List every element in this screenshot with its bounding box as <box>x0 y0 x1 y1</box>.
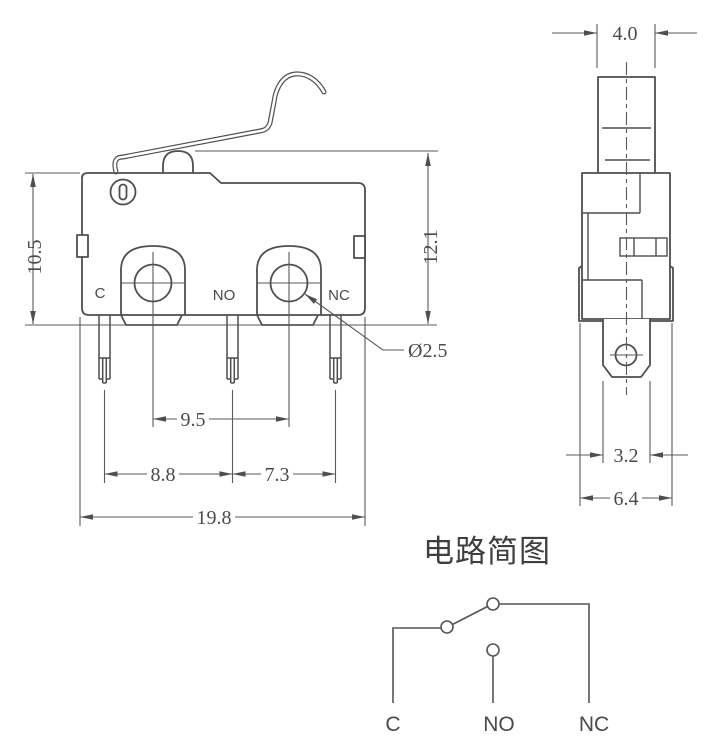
terminal-label-no: NO <box>213 287 236 304</box>
dim-pin-pitches: 8.8 7.3 <box>105 464 336 486</box>
technical-drawing-page: C NO NC <box>0 0 720 744</box>
dim-terminal-width: 3.2 <box>566 445 688 467</box>
circuit-label-c: C <box>385 713 400 736</box>
side-view: 4.0 3.2 6.4 <box>552 23 697 510</box>
mount-boss-left <box>121 246 185 427</box>
micro-switch-drawing: C NO NC <box>0 0 720 744</box>
side-body-internal <box>583 173 667 319</box>
circuit-wiring <box>393 598 589 703</box>
circuit-diagram: 电路简图 C NO NC <box>385 534 609 736</box>
svg-text:19.8: 19.8 <box>197 507 232 529</box>
dim-total-height: 12.1 <box>420 153 442 324</box>
circuit-label-nc: NC <box>579 713 609 736</box>
contact-nc <box>487 598 499 610</box>
side-notch-right <box>354 236 365 258</box>
svg-text:12.1: 12.1 <box>420 230 442 265</box>
svg-text:4.0: 4.0 <box>613 23 638 45</box>
terminal-label-c: C <box>95 285 106 302</box>
dim-mount-hole-spacing: 9.5 <box>153 409 289 431</box>
svg-text:9.5: 9.5 <box>181 409 206 431</box>
mount-boss-right <box>257 246 321 427</box>
lever-arm <box>115 74 324 172</box>
body-foot-right <box>257 315 318 325</box>
pivot-slot <box>120 185 127 200</box>
svg-text:Ø2.5: Ø2.5 <box>408 340 447 362</box>
front-dimensions: 10.5 12.1 9.5 <box>24 151 447 529</box>
circuit-label-no: NO <box>483 713 515 736</box>
contact-no <box>487 644 499 656</box>
svg-text:10.5: 10.5 <box>24 240 46 275</box>
circuit-title: 电路简图 <box>423 534 551 569</box>
dim-hole-diameter-leader: Ø2.5 <box>303 292 447 362</box>
dim-body-thickness: 6.4 <box>580 488 672 510</box>
front-view: C NO NC <box>24 74 447 529</box>
dim-body-width: 19.8 <box>80 507 365 529</box>
dim-body-height: 10.5 <box>24 174 46 324</box>
svg-text:6.4: 6.4 <box>614 488 639 510</box>
dim-plunger-width: 4.0 <box>552 23 697 45</box>
contact-common <box>441 621 453 633</box>
svg-text:3.2: 3.2 <box>614 445 639 467</box>
side-notch-left <box>77 235 88 257</box>
pivot-hole <box>111 180 136 205</box>
svg-text:7.3: 7.3 <box>265 464 290 486</box>
terminal-label-nc: NC <box>328 287 350 304</box>
svg-text:8.8: 8.8 <box>151 464 176 486</box>
side-dimensions: 4.0 3.2 6.4 <box>552 23 697 510</box>
actuator-button <box>163 151 193 173</box>
body-foot-left <box>121 315 182 325</box>
